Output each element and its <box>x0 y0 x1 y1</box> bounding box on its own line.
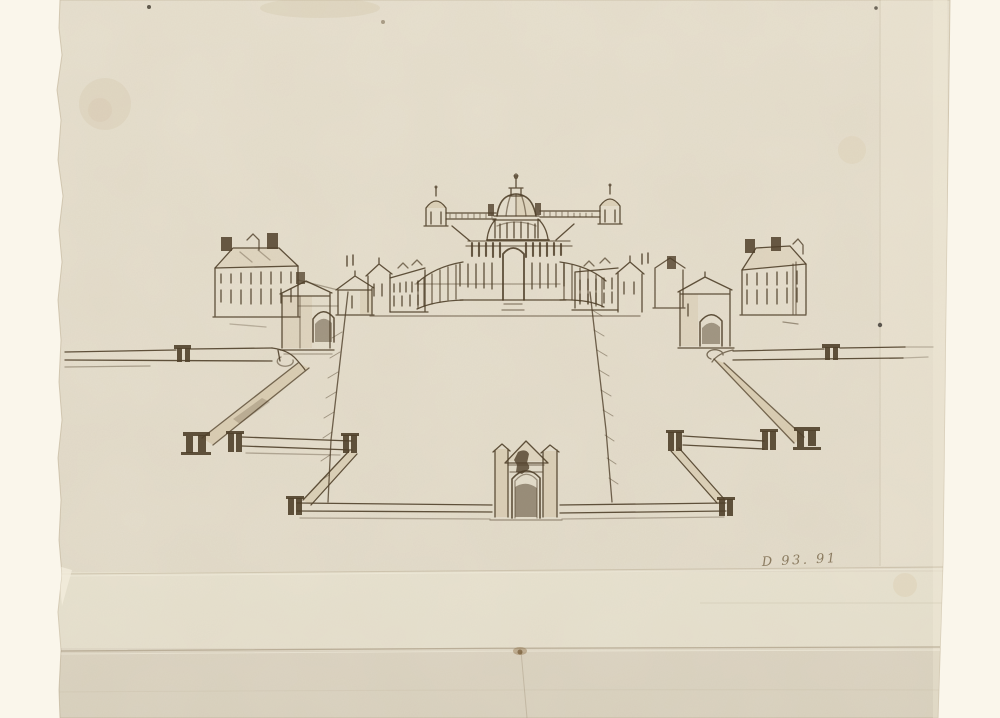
drawing-canvas: D 93. 91 <box>0 0 1000 718</box>
scanned-drawing-page: D 93. 91 <box>0 0 1000 718</box>
light-band <box>57 572 948 648</box>
speck-top-right <box>874 6 878 10</box>
right-wing-chimney-2 <box>771 237 781 251</box>
left-cupola-knob <box>435 186 438 189</box>
pedestal-base <box>793 447 821 450</box>
pier-post <box>833 347 838 360</box>
left-wing-chimney-1 <box>221 237 232 251</box>
pedestal-post <box>186 436 193 453</box>
pier-post <box>228 433 234 452</box>
pier-post <box>762 431 768 450</box>
paper-sheet: D 93. 91 <box>50 0 960 718</box>
pyramid-pavilion-wash <box>360 290 372 314</box>
left-wing-chimney-2 <box>267 233 278 249</box>
stain-left-core <box>88 98 112 122</box>
right-fold-panel <box>881 0 948 566</box>
pier-post <box>288 498 294 515</box>
pedestal-base <box>181 452 211 455</box>
blotch-crease-core <box>518 650 523 655</box>
left-gate-pavilion-wash <box>282 296 312 348</box>
pier-post <box>719 499 725 516</box>
pedestal-post <box>198 435 206 452</box>
pedestal-post <box>797 431 804 447</box>
dome-finial-knob <box>514 175 518 179</box>
right-wing-chimney-1 <box>745 239 755 253</box>
pier-post <box>296 498 302 515</box>
bottom-band <box>57 651 948 718</box>
creases <box>57 566 948 718</box>
stain-right-upper <box>838 136 866 164</box>
pedestal-post <box>808 430 816 446</box>
stain-right-lower <box>893 573 917 597</box>
right-arch-shadow <box>702 323 720 344</box>
main-chimney-left <box>488 204 494 216</box>
gate-left-pylon-wash <box>495 449 508 517</box>
left-inner-chimney <box>296 272 305 284</box>
right-cupola-knob <box>609 184 612 187</box>
pier-post <box>343 435 349 453</box>
pier-post <box>236 433 242 452</box>
gate-arch-shadow <box>515 484 537 517</box>
pier-post <box>770 431 776 450</box>
pier-post <box>727 499 733 516</box>
pedestal-cap <box>794 427 820 431</box>
speck-top-center <box>381 20 385 24</box>
main-chimney-right <box>535 203 541 215</box>
left-arch-shadow <box>315 319 332 342</box>
speck-right <box>878 323 882 327</box>
pier-post <box>676 432 682 451</box>
pier-post <box>668 432 674 451</box>
pier-post <box>351 435 357 453</box>
right-inner-chimney <box>667 256 676 269</box>
pier-post <box>185 348 190 362</box>
pier-post <box>825 347 830 360</box>
speck-top-left <box>147 5 151 9</box>
pier-post <box>177 348 182 362</box>
